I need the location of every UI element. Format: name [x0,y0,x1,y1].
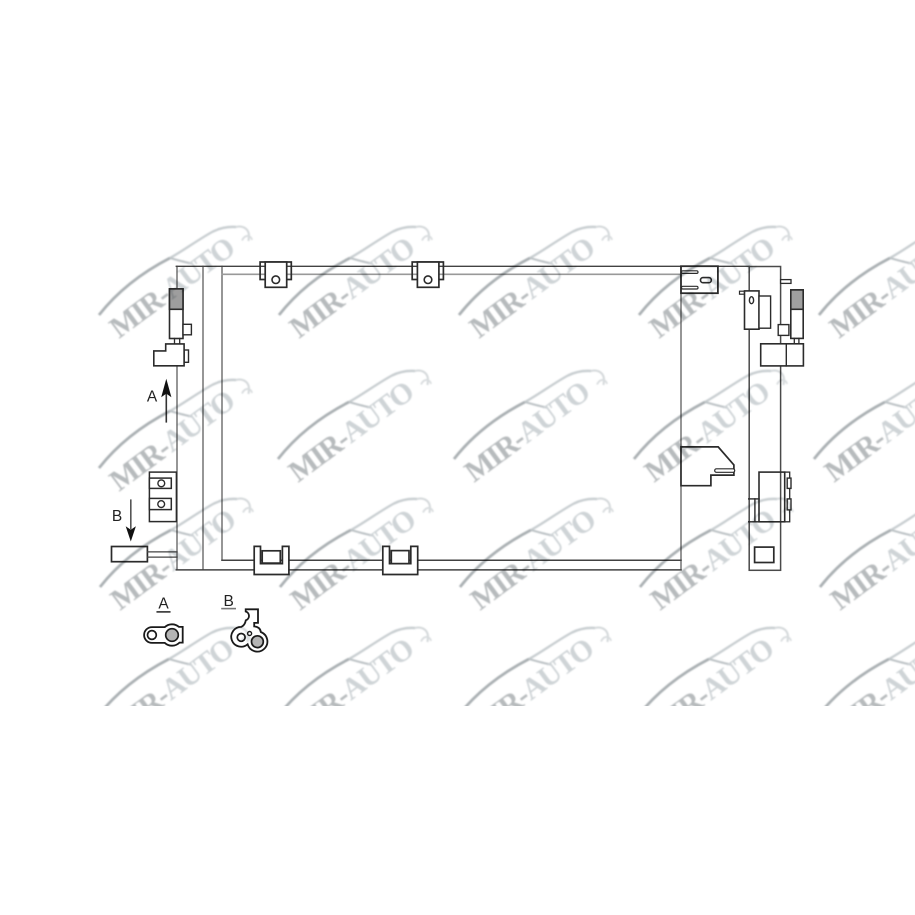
svg-text:A: A [147,389,158,406]
svg-text:B: B [112,508,122,525]
svg-text:A: A [158,596,169,613]
svg-text:B: B [224,593,234,610]
